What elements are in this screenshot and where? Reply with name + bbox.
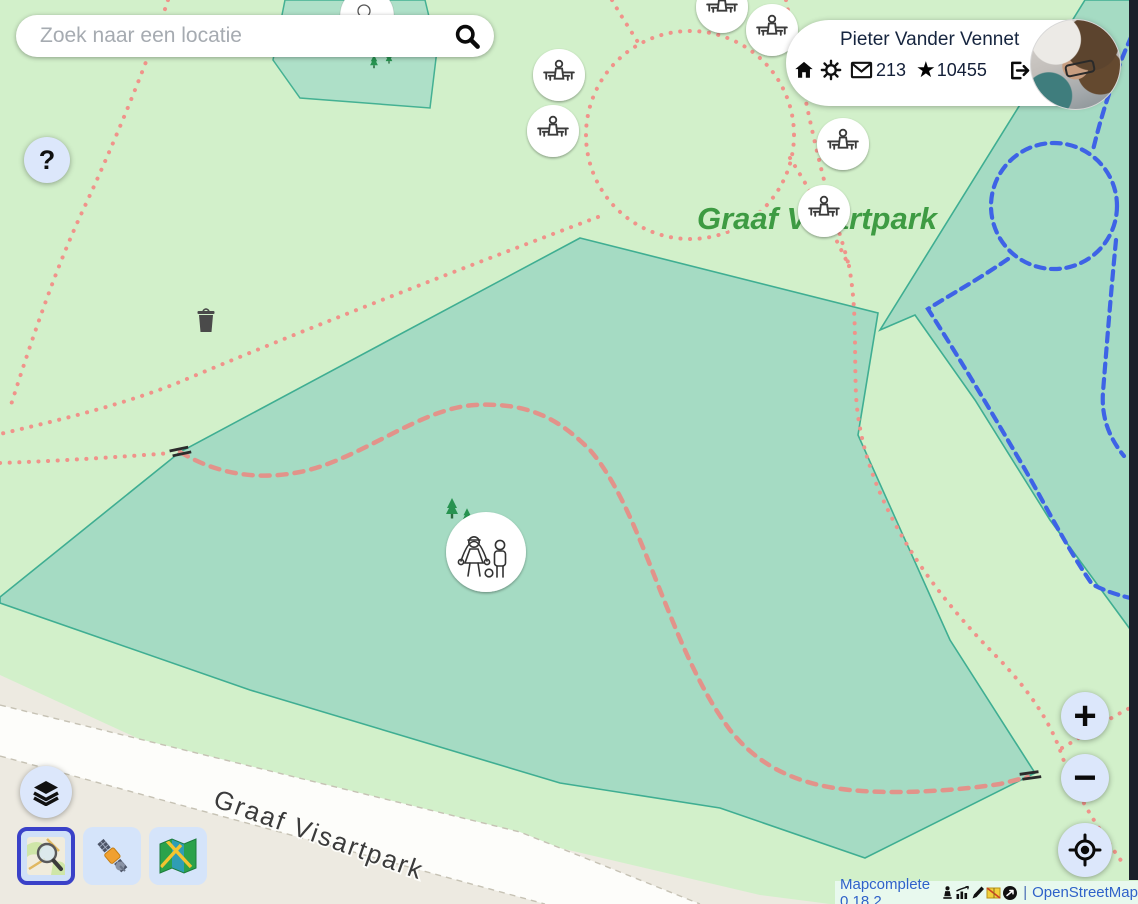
messages-mail-icon[interactable] bbox=[850, 60, 873, 80]
home-icon[interactable] bbox=[793, 59, 815, 81]
folded-map-icon bbox=[157, 835, 199, 877]
crosshair-icon bbox=[1067, 832, 1103, 868]
mapcomplete-version-link[interactable]: Mapcomplete 0.18.2 bbox=[840, 876, 938, 904]
attribution-bar: Mapcomplete 0.18.2 | OpenStreetMap bbox=[835, 881, 1138, 904]
map-attribution-icon[interactable] bbox=[986, 886, 1001, 900]
messages-count[interactable]: 213 bbox=[876, 60, 906, 81]
mapcomplete-app: Graaf Visartpark Graaf Visartpark bbox=[0, 0, 1138, 904]
help-button[interactable]: ? bbox=[24, 137, 70, 183]
statue-icon[interactable] bbox=[941, 885, 954, 900]
picnic-table-marker[interactable] bbox=[533, 49, 585, 101]
star-icon: ★ bbox=[916, 59, 936, 81]
changesets-count[interactable]: 10455 bbox=[937, 60, 987, 81]
layers-button[interactable] bbox=[20, 766, 72, 818]
plus-icon: + bbox=[1073, 694, 1096, 738]
playground-marker[interactable] bbox=[446, 512, 526, 592]
basemap-picker bbox=[17, 827, 207, 885]
map-canvas[interactable]: Graaf Visartpark Graaf Visartpark bbox=[0, 0, 1138, 904]
side-panel-edge bbox=[1129, 0, 1138, 880]
picnic-table-marker[interactable] bbox=[817, 118, 869, 170]
avatar-glasses bbox=[1064, 59, 1096, 78]
search-input[interactable] bbox=[38, 23, 454, 49]
edit-pencil-icon[interactable] bbox=[971, 885, 985, 900]
satellite-icon bbox=[91, 835, 133, 877]
question-mark-icon: ? bbox=[39, 145, 56, 176]
basemap-osm-carto-button[interactable] bbox=[17, 827, 75, 885]
search-bar bbox=[16, 15, 494, 57]
zoom-in-button[interactable]: + bbox=[1061, 692, 1109, 740]
basemap-map-button[interactable] bbox=[149, 827, 207, 885]
picnic-table-marker[interactable] bbox=[527, 105, 579, 157]
openstreetmap-link[interactable]: OpenStreetMap bbox=[1032, 884, 1138, 901]
logout-icon[interactable] bbox=[1007, 59, 1030, 82]
picnic-table-marker[interactable] bbox=[798, 185, 850, 237]
osm-carto-preview-icon bbox=[25, 835, 67, 877]
basemap-satellite-button[interactable] bbox=[83, 827, 141, 885]
zoom-out-button[interactable]: − bbox=[1061, 754, 1109, 802]
minus-icon: − bbox=[1073, 758, 1096, 798]
geolocate-button[interactable] bbox=[1058, 823, 1112, 877]
search-icon[interactable] bbox=[454, 23, 481, 50]
osm-copyright-icon[interactable] bbox=[1002, 885, 1018, 901]
layers-icon bbox=[32, 778, 60, 806]
user-avatar[interactable] bbox=[1030, 19, 1121, 110]
attribution-separator: | bbox=[1023, 884, 1027, 901]
settings-gear-icon[interactable] bbox=[820, 59, 842, 81]
statistics-icon[interactable] bbox=[955, 885, 970, 900]
